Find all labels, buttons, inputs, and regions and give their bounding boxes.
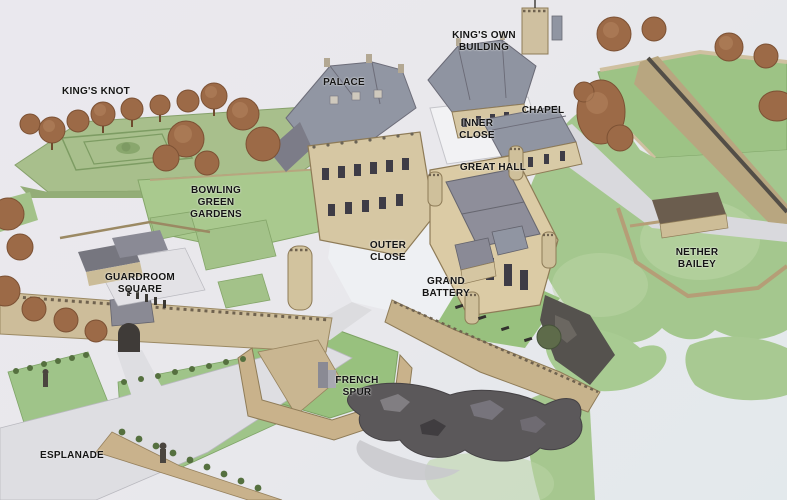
map-label-chapel: CHAPEL: [522, 105, 565, 117]
map-label-esplanade: ESPLANADE: [40, 450, 104, 462]
map-label-kings-own-building: KING'S OWN BUILDING: [452, 30, 516, 54]
map-label-nether-bailey: NETHER BAILEY: [676, 247, 719, 271]
map-label-great-hall: GREAT HALL: [460, 162, 526, 174]
map-label-inner-close: INNER CLOSE: [459, 118, 495, 142]
map-label-guardroom-square: GUARDROOM SQUARE: [105, 272, 175, 296]
label-layer: KING'S KNOTPALACEKING'S OWN BUILDINGCHAP…: [0, 0, 787, 500]
map-label-french-spur: FRENCH SPUR: [335, 375, 378, 399]
map-label-outer-close: OUTER CLOSE: [370, 240, 406, 264]
map-label-kings-knot: KING'S KNOT: [62, 86, 130, 98]
map-label-grand-battery: GRAND BATTERY: [422, 276, 470, 300]
map-label-palace: PALACE: [323, 77, 365, 89]
map-label-bowling-green-gardens: BOWLING GREEN GARDENS: [190, 185, 242, 221]
castle-map: KING'S KNOTPALACEKING'S OWN BUILDINGCHAP…: [0, 0, 787, 500]
